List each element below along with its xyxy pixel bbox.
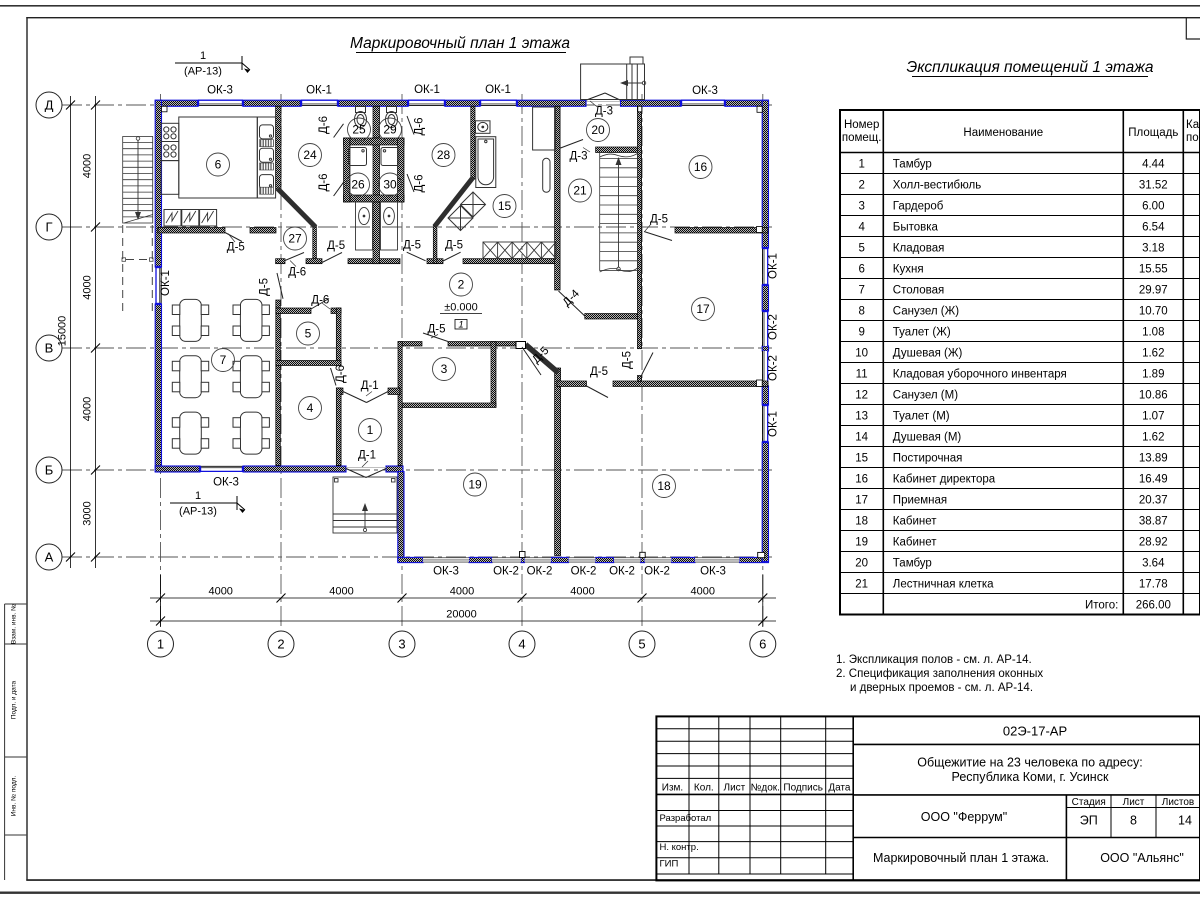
svg-text:1: 1 — [858, 159, 864, 171]
svg-text:№док.: №док. — [751, 783, 780, 794]
svg-text:4000: 4000 — [329, 586, 353, 598]
svg-text:13: 13 — [855, 411, 868, 423]
svg-text:12: 12 — [855, 390, 868, 402]
svg-text:Маркировочный план 1 этажа.: Маркировочный план 1 этажа. — [873, 851, 1049, 865]
svg-text:Д-5: Д-5 — [327, 240, 345, 252]
svg-text:Г: Г — [45, 220, 52, 235]
svg-text:Д-1: Д-1 — [358, 450, 376, 462]
svg-text:14: 14 — [855, 432, 868, 444]
svg-text:7: 7 — [220, 353, 227, 367]
svg-text:ОК-1: ОК-1 — [306, 85, 332, 97]
svg-text:Кладовая уборочного инвентаря: Кладовая уборочного инвентаря — [893, 369, 1067, 381]
svg-text:Дата: Дата — [828, 783, 851, 794]
svg-text:4: 4 — [307, 401, 314, 415]
svg-text:(АР-13): (АР-13) — [184, 66, 222, 78]
svg-text:29.97: 29.97 — [1139, 285, 1168, 297]
svg-text:Инв. № подл.: Инв. № подл. — [11, 776, 18, 817]
svg-text:Д-6: Д-6 — [318, 173, 330, 191]
svg-text:4000: 4000 — [691, 586, 715, 598]
svg-text:Изм.: Изм. — [662, 783, 683, 794]
svg-text:Кабинет директора: Кабинет директора — [893, 474, 996, 486]
svg-text:ООО "Феррум": ООО "Феррум" — [921, 810, 1007, 824]
svg-text:24: 24 — [303, 148, 317, 162]
svg-text:5: 5 — [858, 243, 864, 255]
svg-text:10.86: 10.86 — [1139, 390, 1168, 402]
svg-text:4000: 4000 — [570, 586, 594, 598]
svg-text:ЭП: ЭП — [1080, 814, 1098, 828]
svg-text:Подпись: Подпись — [783, 783, 823, 794]
svg-text:1.08: 1.08 — [1142, 327, 1164, 339]
svg-text:ОК-1: ОК-1 — [768, 411, 780, 437]
svg-text:4000: 4000 — [450, 586, 474, 598]
svg-text:Постирочная: Постирочная — [893, 453, 963, 465]
svg-text:1.07: 1.07 — [1142, 411, 1164, 423]
svg-text:6.54: 6.54 — [1142, 222, 1165, 234]
svg-text:А: А — [45, 550, 54, 565]
svg-text:Душевая (М): Душевая (М) — [893, 432, 962, 444]
svg-text:15000: 15000 — [57, 316, 69, 347]
svg-text:Д-6: Д-6 — [414, 117, 426, 135]
svg-text:19: 19 — [855, 537, 868, 549]
svg-text:ОК-1: ОК-1 — [414, 84, 440, 96]
svg-text:15: 15 — [855, 453, 868, 465]
svg-text:Кладовая: Кладовая — [893, 243, 945, 255]
svg-text:20: 20 — [855, 558, 868, 570]
svg-text:Номер: Номер — [844, 119, 879, 131]
svg-text:4000: 4000 — [208, 586, 232, 598]
svg-text:Стадия: Стадия — [1072, 797, 1106, 808]
svg-text:Б: Б — [45, 463, 54, 478]
svg-text:1: 1 — [195, 490, 201, 502]
svg-text:38.87: 38.87 — [1139, 516, 1168, 528]
svg-text:1: 1 — [157, 637, 164, 652]
svg-text:27: 27 — [288, 232, 302, 246]
svg-text:ОК-1: ОК-1 — [768, 253, 780, 279]
svg-text:Бытовка: Бытовка — [893, 222, 939, 234]
svg-text:Санузел (М): Санузел (М) — [893, 390, 958, 402]
svg-text:1.62: 1.62 — [1142, 348, 1164, 360]
svg-text:3.64: 3.64 — [1142, 558, 1165, 570]
svg-text:Кухня: Кухня — [893, 264, 924, 276]
svg-text:Д-5: Д-5 — [590, 366, 608, 378]
svg-text:31.52: 31.52 — [1139, 180, 1168, 192]
svg-text:Ка: Ка — [1186, 119, 1200, 131]
svg-text:Республика Коми, г. Усинск: Республика Коми, г. Усинск — [952, 770, 1109, 784]
svg-text:6.00: 6.00 — [1142, 201, 1164, 213]
svg-text:Лист: Лист — [724, 783, 746, 794]
svg-text:Д-3: Д-3 — [569, 151, 587, 163]
svg-text:(АР-13): (АР-13) — [179, 506, 217, 518]
svg-text:5: 5 — [638, 637, 645, 652]
svg-text:16.49: 16.49 — [1139, 474, 1168, 486]
svg-text:Д: Д — [45, 98, 54, 113]
svg-text:20: 20 — [591, 123, 605, 137]
svg-text:13.89: 13.89 — [1139, 453, 1168, 465]
svg-text:18: 18 — [855, 516, 868, 528]
svg-text:Разработал: Разработал — [660, 813, 712, 824]
svg-text:266.00: 266.00 — [1136, 600, 1171, 612]
svg-text:Туалет (Ж): Туалет (Ж) — [893, 327, 951, 339]
svg-text:4.44: 4.44 — [1142, 159, 1165, 171]
svg-text:6: 6 — [215, 158, 222, 172]
svg-text:Туалет (М): Туалет (М) — [893, 411, 950, 423]
svg-text:ОК-1: ОК-1 — [485, 84, 511, 96]
svg-text:Экспликация помещений 1 этажа: Экспликация помещений 1 этажа — [906, 59, 1153, 76]
svg-text:1: 1 — [367, 423, 374, 437]
svg-text:Д-6: Д-6 — [335, 365, 347, 383]
svg-text:Наименование: Наименование — [963, 127, 1043, 139]
svg-text:ОК-2: ОК-2 — [571, 566, 597, 578]
svg-text:Приемная: Приемная — [893, 495, 947, 507]
svg-text:Лестничная клетка: Лестничная клетка — [893, 579, 994, 591]
svg-text:29: 29 — [383, 123, 397, 137]
svg-text:Н. контр.: Н. контр. — [660, 842, 699, 853]
svg-text:17.78: 17.78 — [1139, 579, 1168, 591]
svg-text:Лист: Лист — [1123, 797, 1145, 808]
svg-text:18: 18 — [657, 479, 671, 493]
svg-text:Д-5: Д-5 — [259, 278, 271, 296]
svg-text:по: по — [1186, 132, 1199, 144]
svg-text:2: 2 — [858, 180, 864, 192]
svg-text:Листов: Листов — [1162, 797, 1195, 808]
svg-text:10.70: 10.70 — [1139, 306, 1168, 318]
svg-text:21: 21 — [855, 579, 868, 591]
svg-text:3: 3 — [441, 362, 448, 376]
svg-text:ОК-2: ОК-2 — [527, 566, 553, 578]
svg-text:Гардероб: Гардероб — [893, 201, 944, 213]
svg-text:Д-6: Д-6 — [288, 267, 306, 279]
svg-text:3: 3 — [858, 201, 864, 213]
svg-text:4000: 4000 — [82, 275, 94, 299]
svg-text:ОК-3: ОК-3 — [700, 566, 726, 578]
svg-text:19: 19 — [468, 478, 482, 492]
svg-text:20000: 20000 — [446, 609, 477, 621]
svg-text:4000: 4000 — [82, 397, 94, 421]
svg-text:8: 8 — [858, 306, 864, 318]
svg-text:1: 1 — [458, 320, 463, 331]
svg-text:Д-6: Д-6 — [318, 116, 330, 134]
svg-text:ОК-2: ОК-2 — [493, 566, 519, 578]
svg-text:20.37: 20.37 — [1139, 495, 1168, 507]
svg-text:±0.000: ±0.000 — [444, 302, 478, 314]
svg-text:Д-1: Д-1 — [361, 380, 379, 392]
svg-text:28: 28 — [437, 148, 451, 162]
svg-text:Кабинет: Кабинет — [893, 537, 937, 549]
svg-text:2. Спецификация заполнения око: 2. Спецификация заполнения оконных — [836, 668, 1043, 680]
svg-text:Д-5: Д-5 — [622, 351, 634, 369]
svg-text:Д-5: Д-5 — [445, 240, 463, 252]
svg-text:8: 8 — [1130, 814, 1137, 828]
svg-text:ОК-3: ОК-3 — [692, 85, 718, 97]
svg-text:Д-5: Д-5 — [650, 214, 668, 226]
svg-text:02Э-17-АР: 02Э-17-АР — [1003, 724, 1067, 739]
svg-text:Итого:: Итого: — [1085, 600, 1118, 612]
svg-text:Кабинет: Кабинет — [893, 516, 937, 528]
svg-text:ООО "Альянс": ООО "Альянс" — [1100, 851, 1184, 865]
svg-text:Д-6: Д-6 — [414, 174, 426, 192]
svg-text:15.55: 15.55 — [1139, 264, 1168, 276]
svg-text:10: 10 — [855, 348, 868, 360]
svg-text:Общежитие на 23 человека по ад: Общежитие на 23 человека по адресу: — [917, 756, 1142, 770]
svg-text:Д-5: Д-5 — [227, 242, 245, 254]
svg-text:Тамбур: Тамбур — [893, 558, 932, 570]
svg-text:1.62: 1.62 — [1142, 432, 1164, 444]
svg-text:15: 15 — [498, 199, 512, 213]
svg-text:Д-5: Д-5 — [427, 324, 445, 336]
svg-text:3: 3 — [398, 637, 405, 652]
svg-text:2: 2 — [277, 637, 284, 652]
svg-text:ОК-1: ОК-1 — [160, 270, 172, 296]
svg-text:ОК-2: ОК-2 — [768, 355, 780, 381]
svg-text:21: 21 — [573, 184, 587, 198]
svg-text:Площадь: Площадь — [1128, 127, 1178, 139]
svg-text:Д-5: Д-5 — [403, 240, 421, 252]
svg-text:3000: 3000 — [82, 501, 94, 525]
svg-text:ОК-2: ОК-2 — [644, 566, 670, 578]
svg-text:Кол.: Кол. — [694, 783, 714, 794]
svg-text:ГИП: ГИП — [660, 859, 679, 870]
svg-text:Санузел (Ж): Санузел (Ж) — [893, 306, 959, 318]
svg-text:17: 17 — [855, 495, 868, 507]
svg-text:30: 30 — [383, 178, 397, 192]
svg-text:2: 2 — [458, 278, 465, 292]
svg-text:5: 5 — [305, 327, 312, 341]
svg-text:4000: 4000 — [82, 154, 94, 178]
svg-text:и дверных проемов - см. л. АР-: и дверных проемов - см. л. АР-14. — [850, 682, 1033, 694]
svg-text:ОК-3: ОК-3 — [207, 85, 233, 97]
svg-text:ОК-2: ОК-2 — [768, 314, 780, 340]
svg-text:1: 1 — [200, 50, 206, 62]
svg-text:ОК-3: ОК-3 — [433, 566, 459, 578]
svg-text:17: 17 — [696, 302, 710, 316]
svg-text:16: 16 — [855, 474, 868, 486]
svg-text:1.89: 1.89 — [1142, 369, 1164, 381]
svg-text:11: 11 — [856, 369, 868, 381]
svg-text:ОК-3: ОК-3 — [213, 477, 239, 489]
svg-text:В: В — [45, 341, 54, 356]
svg-text:Д-6: Д-6 — [311, 295, 329, 307]
svg-text:6: 6 — [759, 637, 766, 652]
svg-text:9: 9 — [858, 327, 864, 339]
svg-text:28.92: 28.92 — [1139, 537, 1168, 549]
svg-text:Тамбур: Тамбур — [893, 159, 932, 171]
svg-text:1. Экспликация полов - см. л.: 1. Экспликация полов - см. л. АР-14. — [836, 654, 1032, 666]
svg-text:4: 4 — [858, 222, 865, 234]
svg-text:14: 14 — [1178, 814, 1192, 828]
svg-text:Взам. инв. №: Взам. инв. № — [11, 604, 18, 644]
svg-text:Холл-вестибюль: Холл-вестибюль — [893, 180, 981, 192]
svg-text:ОК-2: ОК-2 — [609, 566, 635, 578]
svg-text:Столовая: Столовая — [893, 285, 944, 297]
svg-text:26: 26 — [351, 178, 365, 192]
svg-text:7: 7 — [858, 285, 864, 297]
svg-text:3.18: 3.18 — [1142, 243, 1164, 255]
svg-text:6: 6 — [858, 264, 864, 276]
svg-text:помещ.: помещ. — [842, 132, 882, 144]
svg-text:Душевая (Ж): Душевая (Ж) — [893, 348, 963, 360]
svg-text:25: 25 — [352, 123, 366, 137]
svg-text:16: 16 — [694, 160, 708, 174]
svg-text:Маркировочный план 1 этажа: Маркировочный план 1 этажа — [350, 35, 570, 52]
svg-text:Подп. и дата: Подп. и дата — [11, 680, 18, 719]
svg-text:4: 4 — [518, 637, 525, 652]
